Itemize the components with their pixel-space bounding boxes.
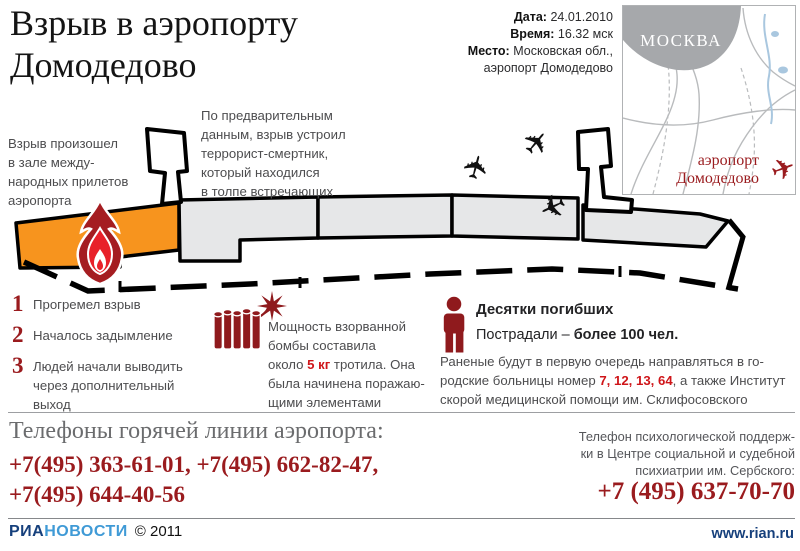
terminal-block-2 bbox=[318, 195, 452, 238]
event-timeline: 1 Прогремел взрыв 2 Началось задымление … bbox=[12, 292, 212, 421]
injured-count: более 100 чел. bbox=[574, 327, 679, 343]
timeline-item-2: 2 Началось задымление bbox=[12, 323, 212, 347]
casualties-injured: Пострадали – более 100 чел. bbox=[476, 327, 678, 343]
meta-date-value: 24.01.2010 bbox=[550, 10, 613, 24]
explosion-location-note: Взрыв произошел в зале между- народных п… bbox=[8, 134, 128, 210]
injured-prefix: Пострадали – bbox=[476, 327, 574, 343]
timeline-number: 1 bbox=[12, 292, 33, 316]
timeline-text: Началось задымление bbox=[33, 323, 173, 347]
website-link[interactable]: www.rian.ru bbox=[712, 526, 794, 542]
meta-time: Время: 16.32 мск bbox=[413, 26, 613, 43]
footer-brand: РИАНОВОСТИ© 2011 bbox=[9, 523, 182, 541]
psych-support-phone: +7 (495) 637-70-70 bbox=[455, 478, 795, 506]
timeline-text: Людей начали выводить через дополнительн… bbox=[33, 354, 183, 414]
event-meta: Дата: 24.01.2010 Время: 16.32 мск Место:… bbox=[413, 9, 613, 77]
arrivals-hall-shape bbox=[16, 203, 179, 268]
timeline-number: 3 bbox=[12, 354, 33, 414]
airplane-icon: ✈ bbox=[532, 183, 572, 229]
divider bbox=[8, 518, 795, 519]
fire-icon bbox=[78, 200, 123, 284]
hotline-phones: +7(495) 363-61-01, +7(495) 662-82-47, +7… bbox=[9, 450, 378, 510]
hospital-numbers: 7, 12, 13, 64 bbox=[599, 373, 672, 388]
brand-ria: РИА bbox=[9, 523, 44, 540]
terminal-block-1 bbox=[179, 197, 318, 261]
terrorist-note: По предварительным данным, взрыв устроил… bbox=[201, 106, 346, 201]
road-dashed-line bbox=[24, 262, 738, 291]
moscow-label: МОСКВА bbox=[640, 31, 722, 50]
timeline-number: 2 bbox=[12, 323, 33, 347]
map-lake bbox=[778, 67, 788, 74]
brand-novosti: НОВОСТИ bbox=[44, 523, 128, 540]
terminal-tower-left bbox=[147, 129, 187, 204]
airplane-icons: ✈ ✈ ✈ bbox=[455, 120, 573, 228]
bomb-weight-highlight: 5 кг bbox=[307, 357, 330, 372]
meta-date-label: Дата: bbox=[514, 10, 547, 24]
person-icon bbox=[444, 297, 465, 353]
map-river bbox=[764, 14, 772, 124]
timeline-item-3: 3 Людей начали выводить через дополнител… bbox=[12, 354, 212, 414]
hotline-heading: Телефоны горячей линии аэропорта: bbox=[9, 418, 384, 445]
meta-date: Дата: 24.01.2010 bbox=[413, 9, 613, 26]
airplane-icon: ✈ bbox=[513, 120, 559, 165]
meta-place-label: Место: bbox=[468, 44, 510, 58]
map-airport-label: аэропорт Домодедово bbox=[676, 152, 759, 188]
page-title: Взрыв в аэропорту Домодедово bbox=[10, 2, 298, 86]
meta-time-label: Время: bbox=[510, 27, 554, 41]
psych-support-note: Телефон психологической поддерж- ки в Це… bbox=[455, 428, 795, 479]
copyright: © 2011 bbox=[135, 523, 182, 540]
terminal-right-wall bbox=[728, 220, 743, 290]
location-map: МОСКВА аэропорт Домодедово ✈ bbox=[622, 5, 796, 195]
casualties-dead: Десятки погибших bbox=[476, 301, 613, 318]
timeline-text: Прогремел взрыв bbox=[33, 292, 141, 316]
infographic-page: ✈ ✈ ✈ bbox=[0, 0, 800, 551]
bomb-description: Мощность взорванной бомбы составила окол… bbox=[268, 317, 425, 412]
map-lake bbox=[771, 31, 779, 37]
meta-time-value: 16.32 мск bbox=[558, 27, 613, 41]
terminal-block-3 bbox=[452, 195, 578, 239]
timeline-item-1: 1 Прогремел взрыв bbox=[12, 292, 212, 316]
airplane-icon: ✈ bbox=[455, 149, 499, 185]
terminal-block-4 bbox=[583, 205, 728, 247]
hospitals-note: Раненые будут в первую очередь направлят… bbox=[440, 352, 785, 409]
meta-place: Место: Московская обл., аэропорт Домодед… bbox=[413, 43, 613, 77]
